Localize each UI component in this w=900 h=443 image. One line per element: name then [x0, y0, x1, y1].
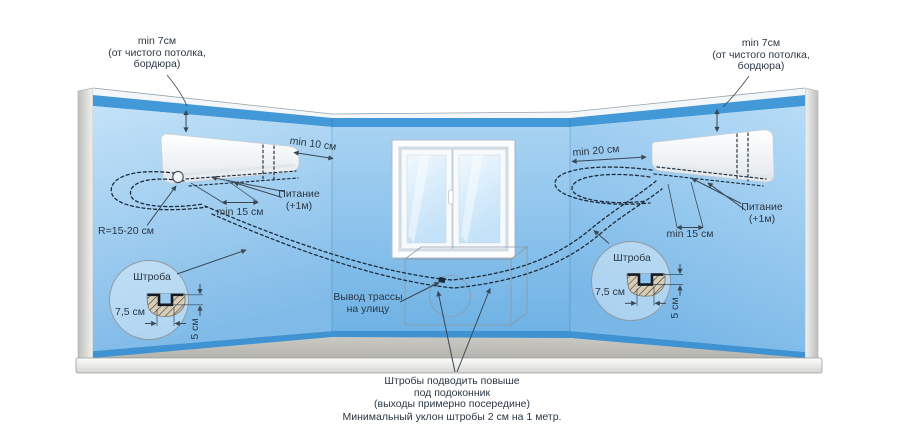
label-line: Питание — [278, 189, 319, 201]
label-line: Вывод трассы — [333, 292, 402, 304]
label-groove-title-right: Штроба — [613, 253, 651, 265]
window-left-sash — [401, 149, 452, 249]
label-trassa-offset-left: min 15 см — [217, 207, 264, 219]
label-ceiling-clearance-left: min 7см (от чистого потолка, бордюра) — [108, 36, 206, 71]
label-groove-width-left: 7,5 см — [115, 307, 145, 319]
label-line: (выходы примерно посередине) — [374, 399, 530, 411]
window-right-sash — [453, 149, 506, 249]
label-line: (+1м) — [278, 201, 319, 213]
label-line: на улицу — [333, 304, 402, 316]
label-line: бордюра) — [108, 59, 206, 71]
ceiling-border-center — [332, 118, 570, 127]
right-wall-edge — [805, 88, 818, 371]
label-groove-depth-left: 5 см — [189, 318, 201, 339]
label-groove-depth-right: 5 см — [669, 297, 681, 318]
label-power-left: Питание (+1м) — [278, 189, 319, 212]
label-ceiling-clearance-right: min 7см (от чистого потолка, бордюра) — [712, 38, 810, 73]
label-slope-note: Минимальный уклон штробы 2 см на 1 метр. — [343, 412, 562, 424]
label-line: бордюра) — [712, 61, 810, 73]
label-trassa-offset-right: min 15 см — [667, 229, 714, 241]
label-line: Штробы подводить повыше — [374, 376, 530, 388]
label-groove-width-right: 7,5 см — [595, 287, 625, 299]
label-groove-title-left: Штроба — [133, 272, 171, 284]
label-line: min 7см — [108, 36, 206, 48]
label-groove-notes: Штробы подводить повыше под подоконник (… — [374, 376, 530, 411]
left-wall-edge — [78, 88, 93, 371]
window-handle — [449, 190, 454, 204]
installation-diagram: min 7см (от чистого потолка, бордюра) mi… — [0, 0, 900, 443]
baseboard-center — [332, 331, 570, 338]
front-ledge — [76, 358, 822, 373]
label-line: (+1м) — [741, 214, 782, 226]
label-bend-radius: R=15-20 см — [98, 226, 154, 238]
label-line: Питание — [741, 202, 782, 214]
window — [392, 140, 516, 260]
label-power-right: Питание (+1м) — [741, 202, 782, 225]
drain-exit-point — [173, 171, 183, 182]
label-outlet: Вывод трассы на улицу — [333, 292, 402, 315]
label-line: min 7см — [712, 38, 810, 50]
